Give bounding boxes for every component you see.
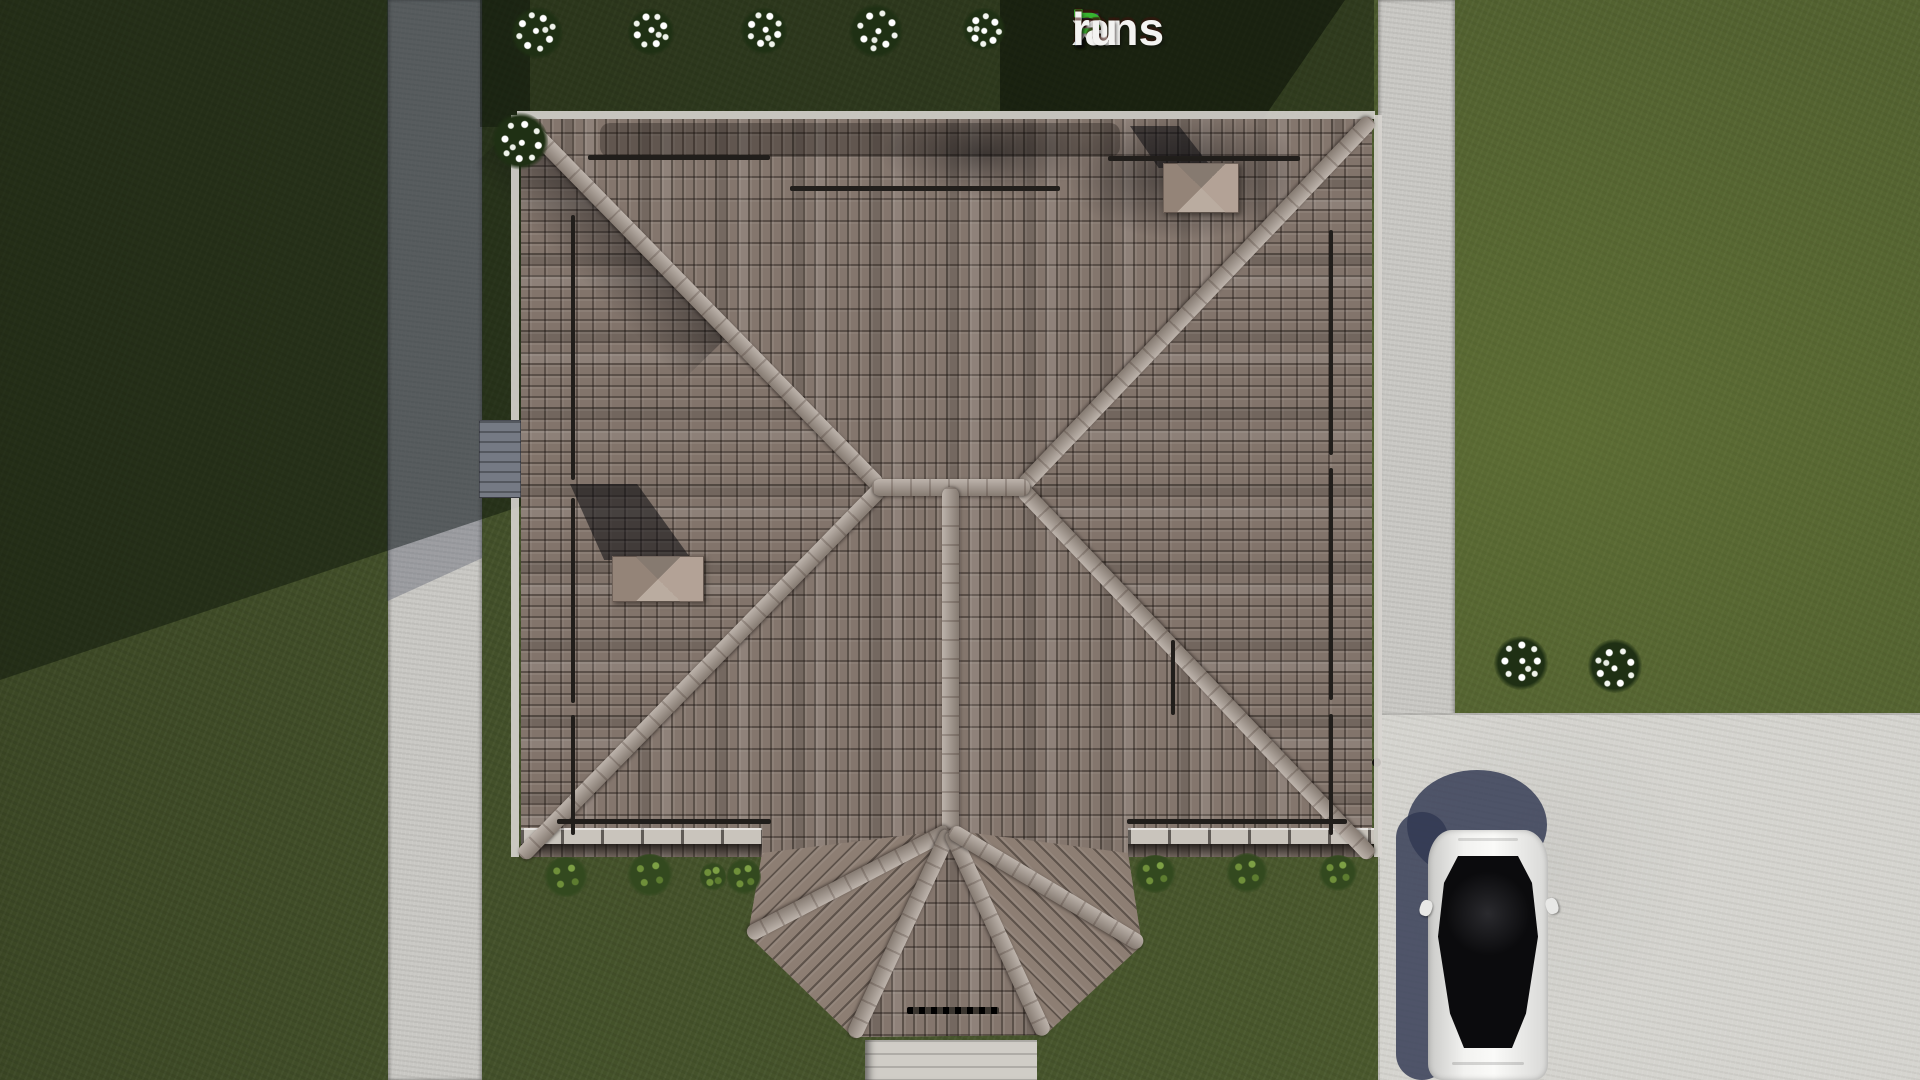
shrub xyxy=(727,858,761,896)
snow-guard-top-1 xyxy=(588,155,770,160)
car-trunk-seam xyxy=(1458,838,1518,841)
shrub xyxy=(543,857,589,897)
snow-guard-right-3 xyxy=(1329,714,1333,835)
snow-guard-right-2 xyxy=(1329,468,1333,700)
snow-guard-top-3 xyxy=(1108,156,1300,161)
snow-guard-top-2 xyxy=(790,186,1060,191)
chimney-northeast xyxy=(1163,163,1239,213)
ridge-vertical xyxy=(942,487,959,835)
chimney-west xyxy=(612,556,704,602)
aerial-render: FixPlans.ru xyxy=(0,0,1920,1080)
fascia-right xyxy=(1374,115,1382,857)
shrub xyxy=(1318,855,1358,891)
porch-vent-bar xyxy=(907,1007,999,1014)
lawn-sunlit-area xyxy=(1455,0,1920,715)
white-sedan xyxy=(1428,830,1548,1080)
fascia-top xyxy=(517,111,1375,119)
car-hood-seam xyxy=(1452,1062,1524,1065)
shrub xyxy=(700,862,726,892)
snow-guard-south xyxy=(1171,640,1175,715)
side-door-deck xyxy=(479,420,521,498)
logo-tld: ru xyxy=(1072,6,1118,52)
snow-guard-bottom-2 xyxy=(1127,819,1347,824)
shrub xyxy=(1133,855,1177,893)
snow-guard-bottom-1 xyxy=(557,819,771,824)
snow-guard-left-2 xyxy=(571,498,575,703)
flower-bush xyxy=(511,7,563,59)
snow-guard-right-1 xyxy=(1329,230,1333,455)
shrub xyxy=(1226,853,1268,893)
walkway-left xyxy=(388,0,482,1080)
car-glass-canopy xyxy=(1438,856,1538,1048)
porch-landing-steps xyxy=(865,1040,1037,1080)
snow-guard-left-3 xyxy=(571,715,575,835)
shrub xyxy=(626,854,674,896)
walkway-right xyxy=(1378,0,1455,717)
snow-guard-left-1 xyxy=(571,215,575,480)
